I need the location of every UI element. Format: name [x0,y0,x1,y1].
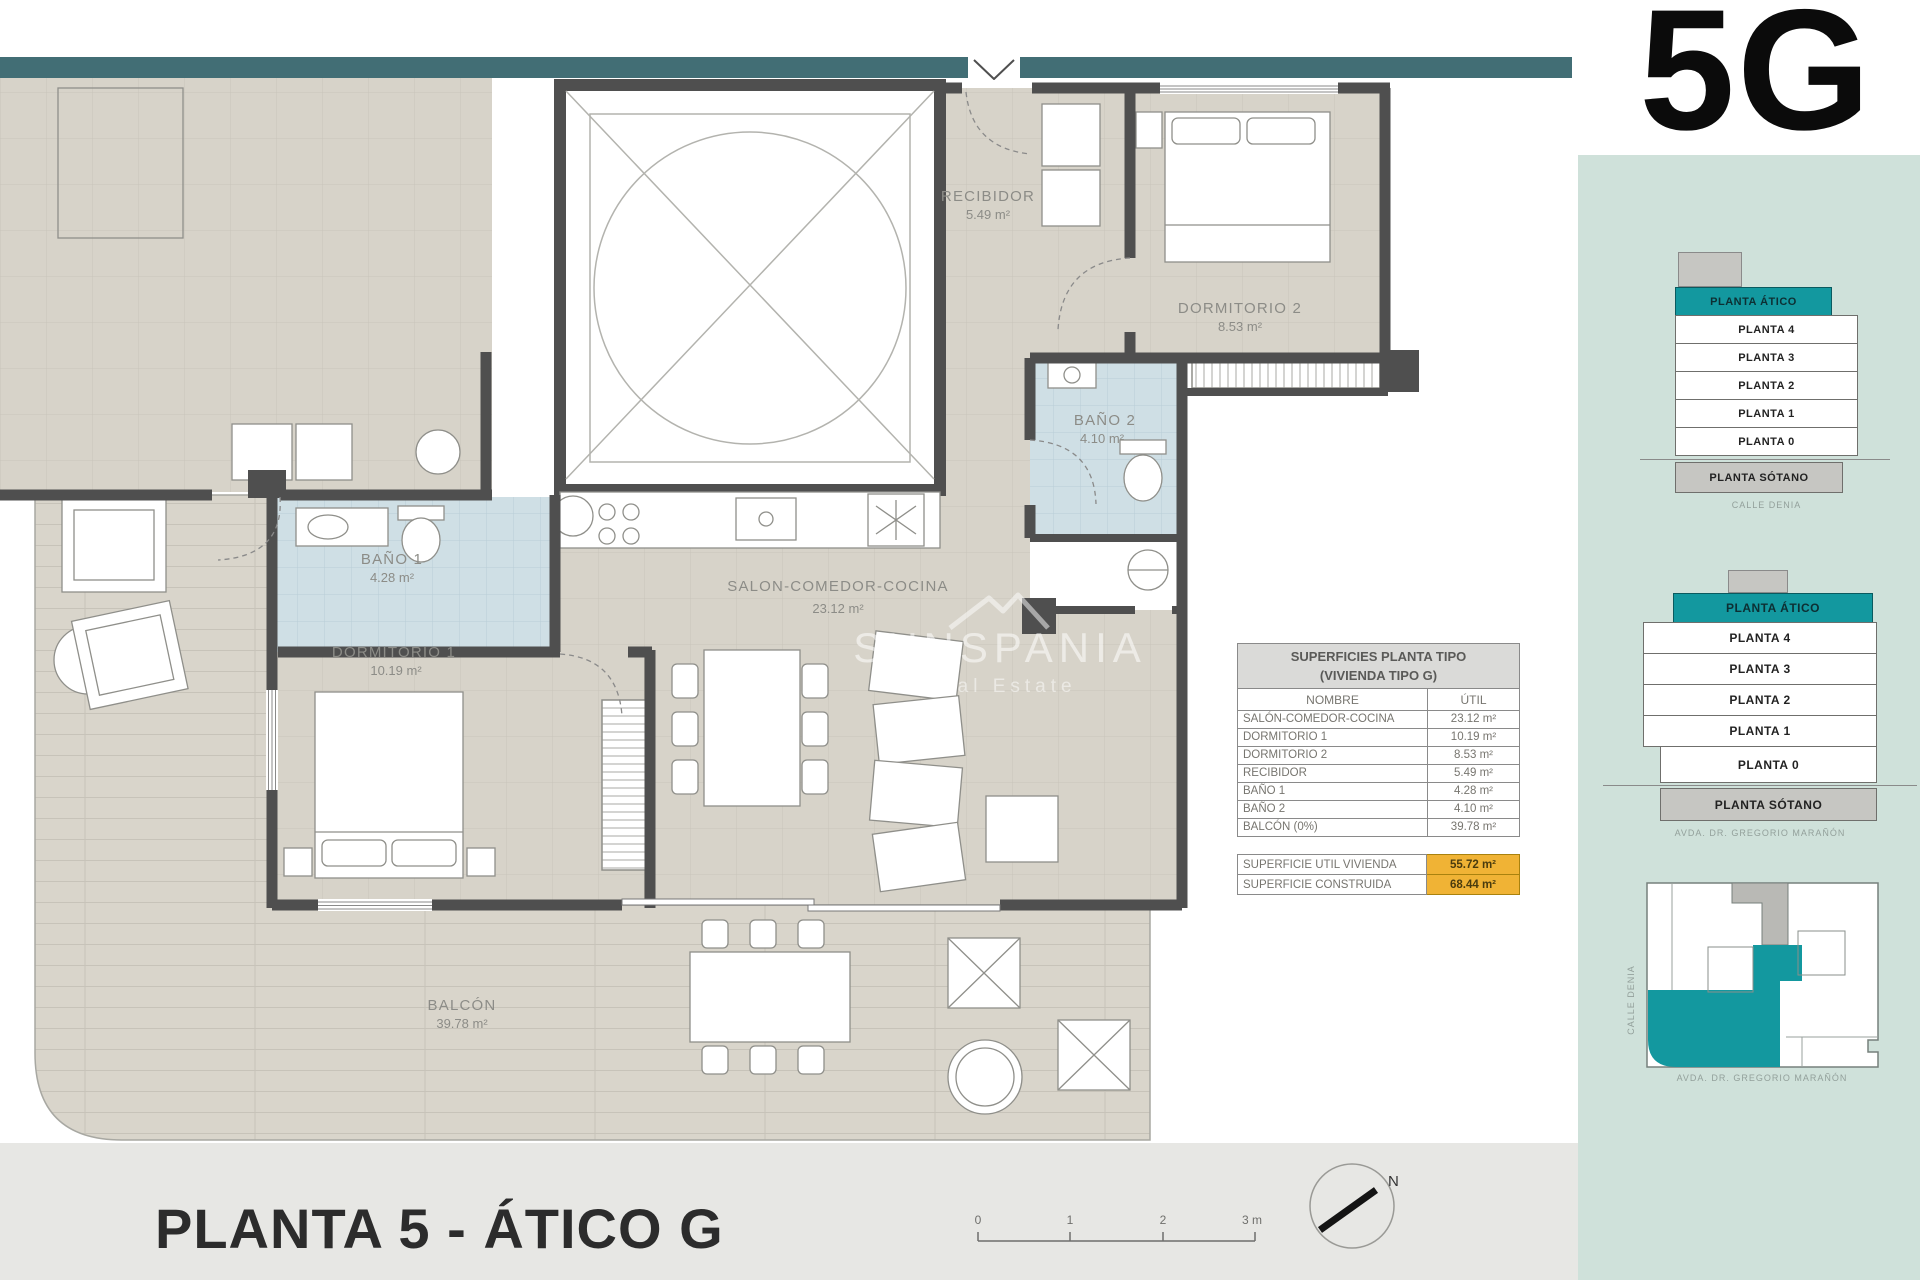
entrance-arrow-icon [968,56,1020,79]
scale-tick-1: 1 [1067,1213,1074,1227]
table-row: BAÑO 2 4.10 m² [1237,801,1520,819]
table-row: BAÑO 1 4.28 m² [1237,783,1520,801]
neighbor-unit [0,78,492,492]
scale-tick-3: 3 m [1242,1213,1262,1227]
floor-row: PLANTA 0 [1660,746,1877,783]
floor-row: PLANTA 2 [1643,684,1877,716]
table-row: BALCÓN (0%) 39.78 m² [1237,819,1520,837]
col-header-util: ÚTIL [1428,689,1519,710]
total-value-highlight: 68.44 m² [1427,874,1520,895]
total-row-util: SUPERFICIE UTIL VIVIENDA 55.72 m² [1237,854,1520,875]
watermark-name: SUNSPANIA [853,624,1147,671]
top-teal-bar [0,57,1572,78]
row-name: DORMITORIO 2 [1238,747,1428,764]
street-label-left: CALLE DENIA [1626,965,1636,1035]
row-util: 8.53 m² [1428,747,1519,764]
room-area-dormitorio1: 10.19 m² [370,663,422,678]
row-util: 5.49 m² [1428,765,1519,782]
total-row-construida: SUPERFICIE CONSTRUIDA 68.44 m² [1237,874,1520,895]
floor-row: PLANTA 3 [1675,343,1858,372]
utility-basin [1128,550,1168,590]
table-row: DORMITORIO 1 10.19 m² [1237,729,1520,747]
row-util: 4.10 m² [1428,801,1519,818]
right-sidebar: PLANTA ÁTICO PLANTA 4 PLANTA 3 PLANTA 2 … [1578,155,1920,1280]
floor-row-sotano: PLANTA SÓTANO [1660,788,1877,821]
room-label-salon: SALON-COMEDOR-COCINA [727,578,949,595]
row-name: DORMITORIO 1 [1238,729,1428,746]
floor-row: PLANTA 2 [1675,371,1858,400]
surfaces-table: SUPERFICIES PLANTA TIPO (VIVIENDA TIPO G… [1237,643,1520,895]
room-area-salon: 23.12 m² [812,601,864,616]
building-stack-calle: PLANTA ÁTICO PLANTA 4 PLANTA 3 PLANTA 2 … [1675,252,1858,510]
kitchen-counter [560,492,940,548]
room-area-bano1: 4.28 m² [370,570,415,585]
row-name: BAÑO 1 [1238,783,1428,800]
row-name: RECIBIDOR [1238,765,1428,782]
roof-box [1728,570,1788,593]
room-area-balcon: 39.78 m² [436,1016,488,1031]
watermark-tagline: Real Estate [923,676,1076,697]
stack-caption: CALLE DENIA [1675,500,1858,510]
scale-tick-2: 2 [1160,1213,1167,1227]
room-area-dormitorio2: 8.53 m² [1218,319,1263,334]
total-name: SUPERFICIE CONSTRUIDA [1237,874,1427,895]
floor-plan-sheet: SUNSPANIA Real Estate RECIBIDOR 5.49 m² … [0,0,1920,1280]
col-header-nombre: NOMBRE [1238,689,1428,710]
site-plan: CALLE DENIA AVDA. DR. GREGORIO MARAÑÓN [1620,873,1900,1091]
floor-row-atico: PLANTA ÁTICO [1675,287,1832,316]
row-name: SALÓN-COMEDOR-COCINA [1238,711,1428,728]
table-row: SALÓN-COMEDOR-COCINA 23.12 m² [1237,711,1520,729]
wardrobe-dormitorio1 [602,700,648,870]
floor-row-atico: PLANTA ÁTICO [1673,593,1873,623]
floor-row: PLANTA 1 [1675,399,1858,428]
row-util: 39.78 m² [1428,819,1519,836]
room-label-dormitorio2: DORMITORIO 2 [1178,300,1302,317]
stack-caption: AVDA. DR. GREGORIO MARAÑÓN [1643,828,1877,838]
sheet-title: PLANTA 5 - ÁTICO G [155,1196,724,1261]
floor-row: PLANTA 0 [1675,427,1858,456]
floor-row-sotano: PLANTA SÓTANO [1675,462,1843,493]
north-label: N [1388,1173,1399,1190]
room-label-recibidor: RECIBIDOR [941,188,1035,205]
ac-unit-icon [868,494,924,546]
floor-row: PLANTA 4 [1675,315,1858,344]
roof-box [1678,252,1742,287]
room-label-bano1: BAÑO 1 [361,551,423,568]
stair-core [560,85,940,490]
row-name: BAÑO 2 [1238,801,1428,818]
floor-row: PLANTA 1 [1643,715,1877,747]
surfaces-table-title-line2: (VIVIENDA TIPO G) [1238,667,1519,686]
row-util: 10.19 m² [1428,729,1519,746]
ground-line [1640,459,1890,460]
dining-set [672,650,828,806]
ground-line [1603,785,1917,786]
bed-dormitorio1 [284,692,495,878]
room-area-recibidor: 5.49 m² [966,207,1011,222]
building-stack-avenida: PLANTA ÁTICO PLANTA 4 PLANTA 3 PLANTA 2 … [1643,570,1877,838]
room-label-bano2: BAÑO 2 [1074,412,1136,429]
total-value-highlight: 55.72 m² [1427,854,1520,875]
table-row: DORMITORIO 2 8.53 m² [1237,747,1520,765]
table-row: RECIBIDOR 5.49 m² [1237,765,1520,783]
row-util: 4.28 m² [1428,783,1519,800]
room-label-dormitorio1: DORMITORIO 1 [332,644,456,661]
street-label-bottom: AVDA. DR. GREGORIO MARAÑÓN [1677,1073,1848,1083]
scale-tick-0: 0 [975,1213,982,1227]
total-name: SUPERFICIE UTIL VIVIENDA [1237,854,1427,875]
row-util: 23.12 m² [1428,711,1519,728]
bed-dormitorio2 [1136,112,1330,262]
surfaces-table-title: SUPERFICIES PLANTA TIPO (VIVIENDA TIPO G… [1237,643,1520,689]
surfaces-table-header: NOMBRE ÚTIL [1237,689,1520,711]
floor-row: PLANTA 4 [1643,622,1877,654]
hall-cabinets [1042,104,1100,226]
room-label-balcon: BALCÓN [428,997,497,1014]
row-name: BALCÓN (0%) [1238,819,1428,836]
surfaces-table-title-line1: SUPERFICIES PLANTA TIPO [1238,648,1519,667]
floor-row: PLANTA 3 [1643,653,1877,685]
room-area-bano2: 4.10 m² [1080,431,1125,446]
unit-code: 5G [1600,0,1912,156]
